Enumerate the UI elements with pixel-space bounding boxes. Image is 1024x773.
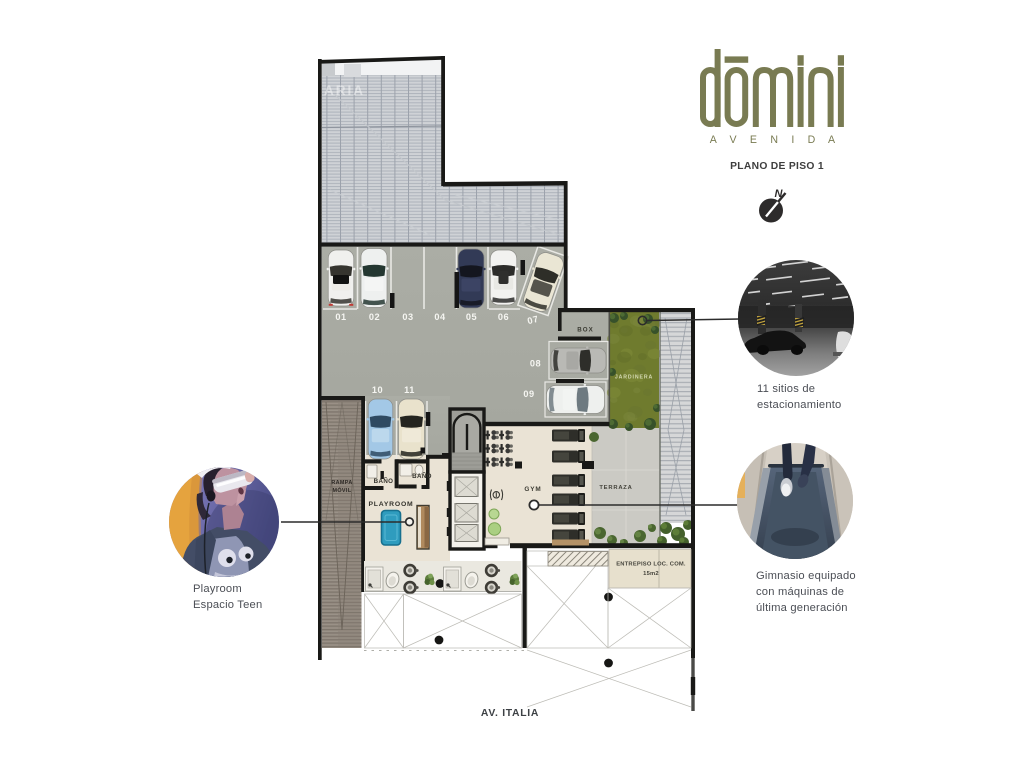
svg-text:AV. ITALIA: AV. ITALIA: [481, 708, 539, 719]
svg-text:Playroom: Playroom: [193, 583, 242, 595]
svg-text:ENTREPISO LOC. COM.: ENTREPISO LOC. COM.: [616, 562, 686, 568]
svg-text:RAMPA: RAMPA: [331, 480, 352, 486]
svg-text:06: 06: [498, 312, 509, 322]
svg-text:BAÑO: BAÑO: [412, 473, 432, 480]
svg-text:con máquinas de: con máquinas de: [756, 586, 844, 598]
svg-text:GYM: GYM: [524, 486, 541, 493]
svg-text:TERRAZA: TERRAZA: [599, 485, 632, 491]
svg-text:11 sitios de: 11 sitios de: [757, 383, 815, 395]
svg-text:15m2: 15m2: [643, 571, 659, 577]
svg-text:05: 05: [466, 312, 477, 322]
svg-text:PLANO DE PISO 1: PLANO DE PISO 1: [730, 161, 824, 172]
svg-text:N: N: [775, 188, 784, 200]
svg-text:10: 10: [372, 385, 383, 395]
svg-text:01: 01: [335, 312, 346, 322]
svg-text:BAÑO: BAÑO: [374, 478, 394, 485]
svg-text:03: 03: [402, 312, 413, 322]
svg-text:última generación: última generación: [756, 602, 848, 614]
svg-text:PLAYROOM: PLAYROOM: [368, 501, 413, 508]
svg-text:estacionamiento: estacionamiento: [757, 399, 841, 411]
svg-text:08: 08: [530, 359, 541, 369]
svg-text:MÓVIL: MÓVIL: [332, 486, 351, 494]
svg-text:Gimnasio equipado: Gimnasio equipado: [756, 570, 856, 582]
svg-text:11: 11: [404, 385, 415, 395]
svg-text:JARDINERA: JARDINERA: [615, 375, 653, 381]
svg-text:09: 09: [523, 389, 534, 399]
svg-text:Espacio Teen: Espacio Teen: [193, 599, 262, 611]
svg-text:ARIA: ARIA: [324, 83, 365, 98]
svg-text:BOX: BOX: [577, 327, 593, 334]
svg-text:02: 02: [369, 312, 380, 322]
svg-text:A V E N I D A: A V E N I D A: [710, 134, 841, 146]
svg-text:04: 04: [434, 312, 446, 322]
